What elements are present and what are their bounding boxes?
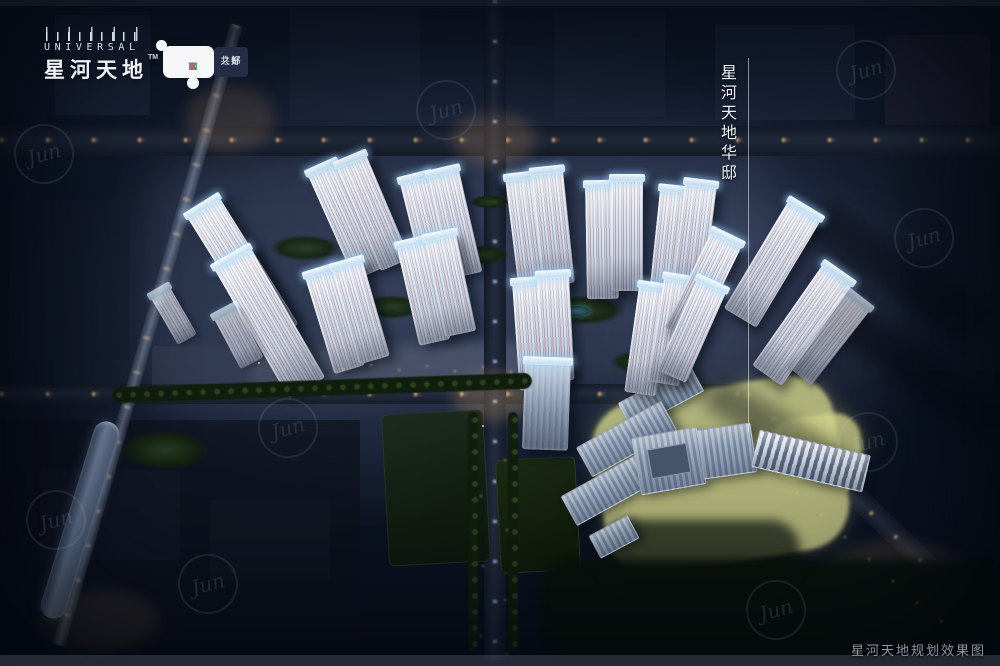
city-block	[10, 200, 130, 360]
street-lights	[482, 425, 484, 427]
aerial-rendering: Jun Jun Jun Jun Jun Jun Jun Jun Jun UNIV…	[0, 0, 1000, 666]
badge-letter: X	[189, 62, 197, 73]
brand-name-text: 星河天地	[44, 59, 148, 82]
city-block	[555, 12, 665, 117]
badge-white-box: CITY MAX	[163, 46, 214, 78]
badge-tagline: 共好 之都	[214, 47, 248, 77]
annotation-leader-line	[748, 58, 749, 432]
image-caption: 星河天地规划效果图	[851, 640, 986, 659]
logo-universal-text: UNIVERSAL	[44, 42, 140, 53]
green-patch	[120, 430, 210, 470]
residential-tower	[611, 179, 643, 291]
badge-tagline-bottom: 之都	[220, 56, 241, 68]
badge-circle-bottom	[187, 77, 199, 89]
top-edge-strip	[0, 0, 1000, 6]
city-block	[885, 35, 990, 125]
tree-row	[508, 412, 518, 652]
street-glow	[40, 590, 160, 650]
road-lights	[493, 0, 497, 660]
citymax-badge: CITY MAX 共好 之都	[156, 40, 252, 92]
logo-skyline-bars	[46, 32, 144, 41]
green-patch	[470, 195, 510, 209]
tower-annotation-label: 星河天地华邸	[714, 64, 738, 184]
brand-name: 星河天地TM	[44, 54, 148, 84]
shopping-mall	[631, 427, 706, 496]
street-lights	[258, 362, 260, 364]
street-lights	[772, 470, 774, 472]
green-patch	[270, 235, 340, 261]
city-block	[290, 8, 420, 120]
tree-row	[468, 412, 478, 652]
intersection-glow	[185, 85, 275, 151]
